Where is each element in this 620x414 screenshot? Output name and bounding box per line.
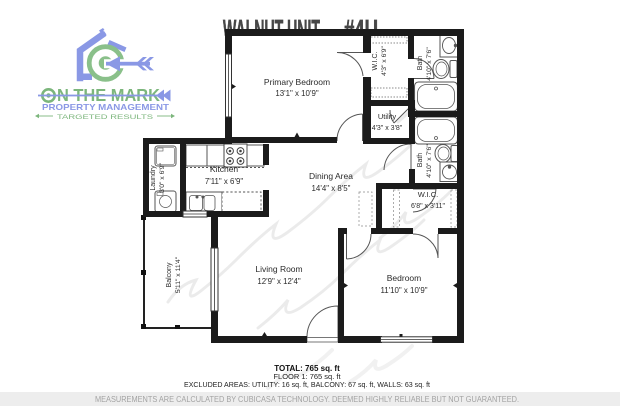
svg-text:MEASUREMENTS ARE CALCULATED BY: MEASUREMENTS ARE CALCULATED BY CUBICASA …	[95, 395, 519, 404]
svg-text:EXCLUDED AREAS: UTILITY: 16 sq: EXCLUDED AREAS: UTILITY: 16 sq. ft, BALC…	[184, 380, 431, 389]
